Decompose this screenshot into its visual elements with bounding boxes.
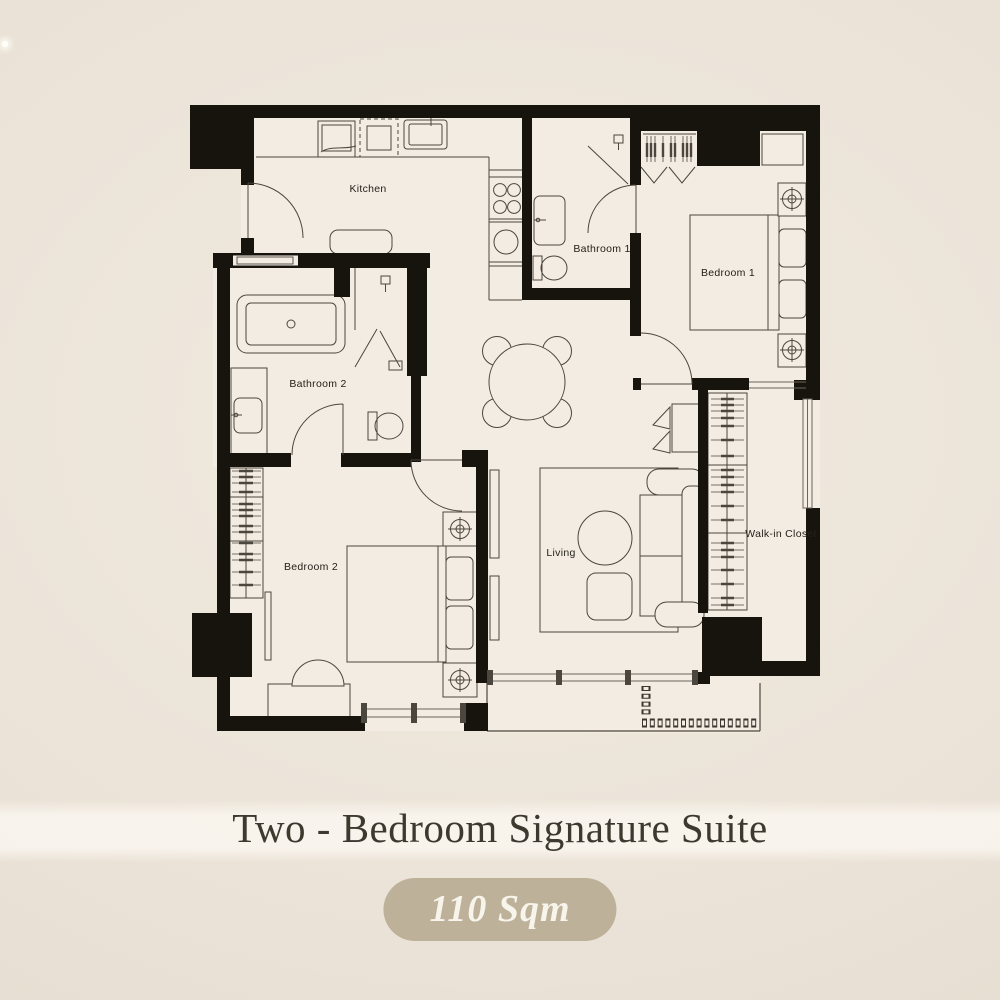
room-label-kitchen: Kitchen: [349, 183, 386, 195]
bed-1-pillow: [779, 229, 806, 267]
dining-set: [483, 337, 572, 428]
bed-2-pillow: [446, 606, 473, 649]
room-label-bathroom-2: Bathroom 2: [289, 378, 346, 390]
column: [192, 613, 252, 677]
area-badge: 110 Sqm: [383, 878, 616, 941]
ottoman: [587, 573, 632, 620]
tv-console: [490, 576, 499, 640]
media-cabinet: [672, 404, 699, 452]
page: Kitchen Bathroom 1 Bedroom 1 Bathroom 2 …: [0, 0, 1000, 1000]
coffee-table: [578, 511, 632, 565]
page-title: Two - Bedroom Signature Suite: [0, 804, 1000, 852]
sofa-armrest: [655, 602, 704, 627]
bed-2-pillow: [446, 557, 473, 600]
room-label-bedroom-1: Bedroom 1: [701, 267, 755, 279]
window-living-sliding: [489, 671, 697, 684]
bed-1-pillow: [779, 280, 806, 318]
tv-console: [490, 470, 499, 558]
room-label-bedroom-2: Bedroom 2: [284, 561, 338, 573]
column: [190, 105, 247, 169]
room-label-bathroom-1: Bathroom 1: [573, 243, 630, 255]
column: [702, 617, 762, 676]
room-label-walk-in-closet: Walk-in Closet: [745, 528, 817, 540]
room-label-living: Living: [546, 547, 575, 559]
dining-table: [489, 344, 565, 420]
bed-2: [347, 546, 446, 662]
floor-plan: Kitchen Bathroom 1 Bedroom 1 Bathroom 2 …: [183, 92, 823, 752]
sparkle-ornament: [1, 40, 9, 48]
